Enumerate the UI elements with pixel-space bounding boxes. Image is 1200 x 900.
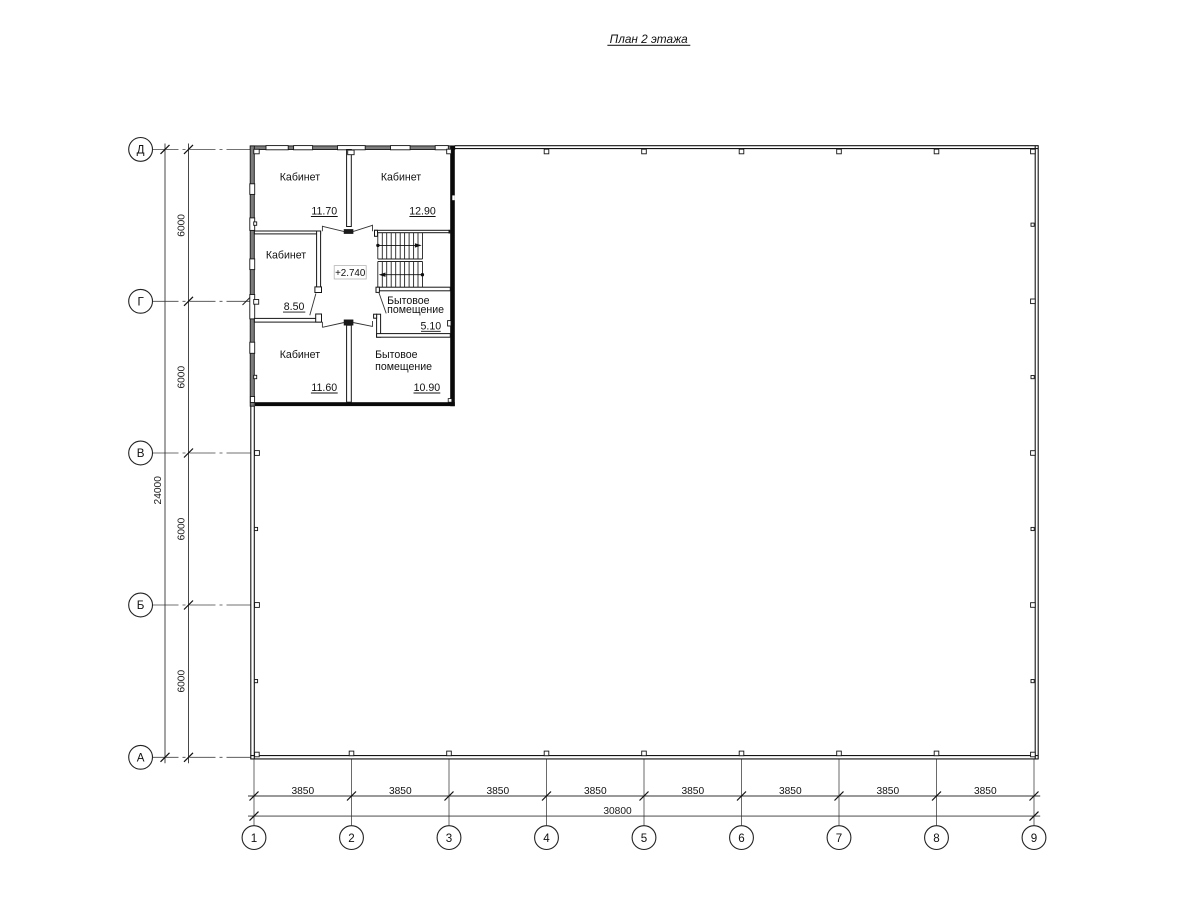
svg-text:5: 5	[641, 832, 647, 845]
svg-text:3850: 3850	[389, 786, 412, 797]
svg-text:Кабинет: Кабинет	[280, 171, 320, 183]
svg-text:5.10: 5.10	[420, 320, 441, 332]
svg-text:Бытовое: Бытовое	[375, 349, 418, 361]
svg-text:Г: Г	[137, 296, 144, 309]
svg-text:Кабинет: Кабинет	[381, 171, 421, 183]
svg-text:3850: 3850	[291, 786, 314, 797]
svg-text:3850: 3850	[779, 786, 802, 797]
svg-text:6000: 6000	[177, 366, 188, 389]
svg-text:10.90: 10.90	[414, 382, 441, 394]
svg-text:9: 9	[1031, 832, 1037, 845]
svg-text:11.60: 11.60	[311, 382, 337, 394]
svg-text:3850: 3850	[486, 786, 509, 797]
svg-text:30800: 30800	[603, 806, 632, 817]
svg-text:Д: Д	[137, 144, 145, 157]
svg-text:7: 7	[836, 832, 842, 845]
svg-text:24000: 24000	[153, 476, 164, 505]
svg-text:6000: 6000	[177, 670, 188, 693]
svg-text:Кабинет: Кабинет	[266, 250, 306, 262]
svg-text:8: 8	[933, 832, 939, 845]
svg-text:6: 6	[738, 832, 744, 845]
svg-text:1: 1	[251, 832, 257, 845]
svg-text:помещение: помещение	[387, 304, 444, 316]
svg-text:+2.740: +2.740	[335, 268, 366, 279]
svg-text:4: 4	[543, 832, 550, 845]
svg-text:3: 3	[446, 832, 452, 845]
svg-text:3850: 3850	[876, 786, 899, 797]
svg-text:А: А	[137, 752, 145, 765]
svg-text:3850: 3850	[584, 786, 607, 797]
svg-text:6000: 6000	[177, 517, 188, 540]
svg-text:6000: 6000	[177, 214, 188, 237]
svg-text:12.90: 12.90	[409, 206, 436, 218]
svg-text:3850: 3850	[681, 786, 704, 797]
svg-text:помещение: помещение	[375, 361, 432, 373]
svg-text:2: 2	[348, 832, 354, 845]
svg-text:11.70: 11.70	[311, 206, 337, 218]
svg-text:Кабинет: Кабинет	[280, 349, 320, 361]
svg-text:8.50: 8.50	[284, 301, 305, 313]
svg-text:В: В	[137, 447, 145, 460]
svg-text:План 2 этажа: План 2 этажа	[610, 32, 689, 46]
svg-text:3850: 3850	[974, 786, 997, 797]
svg-text:Б: Б	[137, 599, 145, 612]
